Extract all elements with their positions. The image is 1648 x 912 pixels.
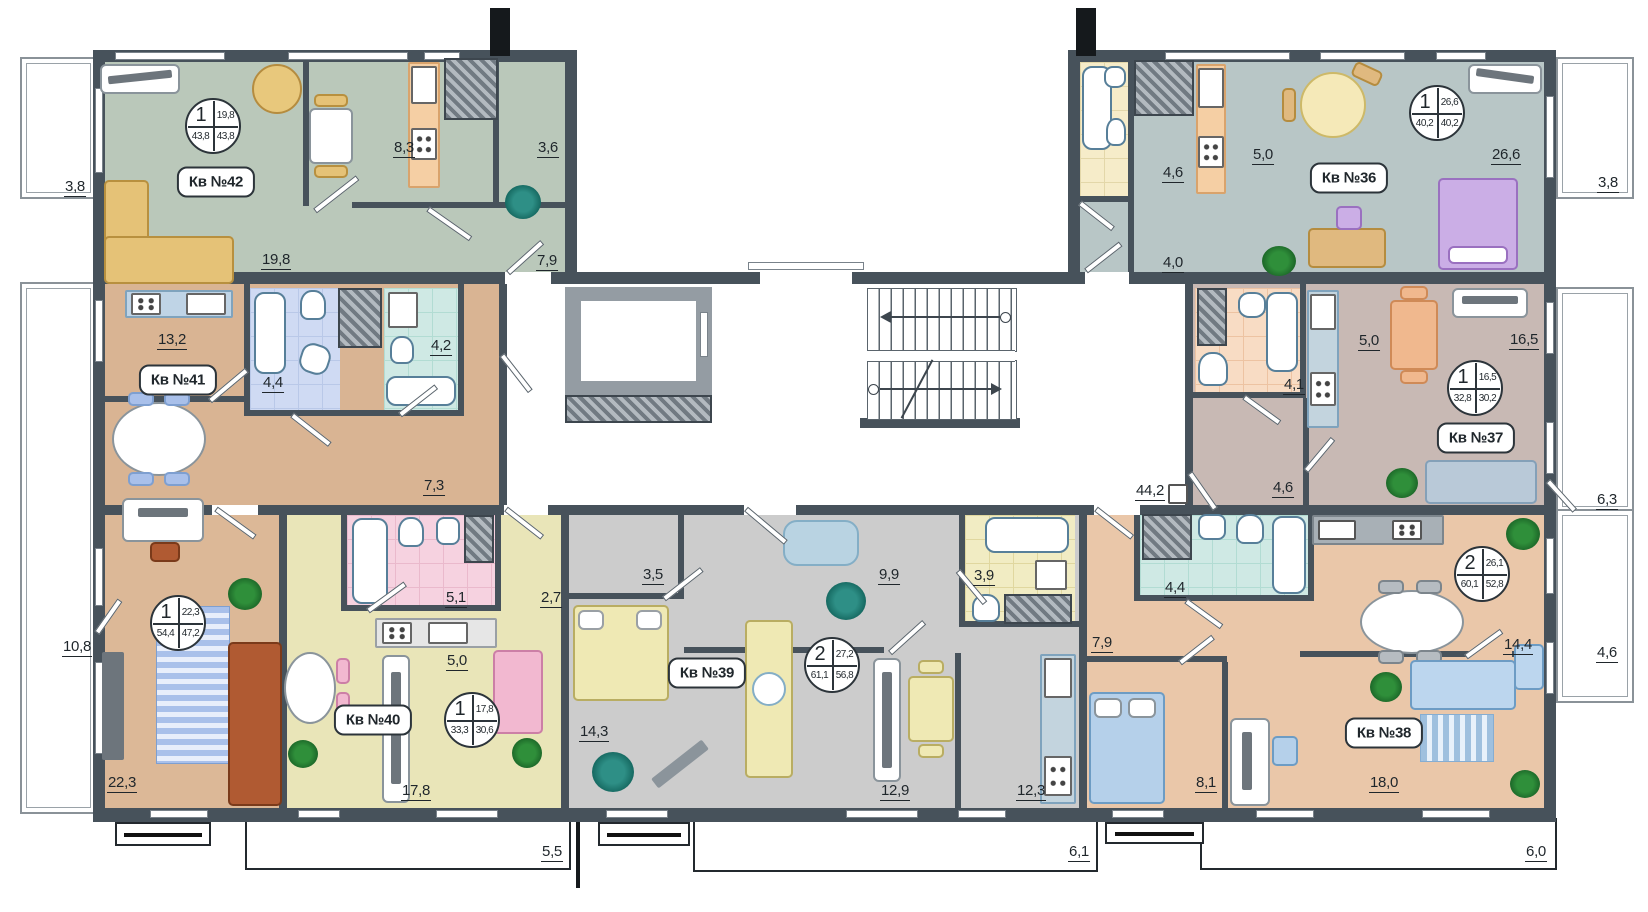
bathtub-icon <box>985 517 1069 553</box>
chair-icon <box>164 472 190 486</box>
plant-icon <box>505 185 541 219</box>
window <box>1546 302 1554 354</box>
corridor-area-label: 44,2 <box>1135 483 1165 501</box>
wall <box>244 284 250 414</box>
room-area-label: 3,6 <box>537 140 559 158</box>
plant-icon <box>228 578 262 610</box>
bottom-dim-label: 5,5 <box>541 844 563 862</box>
balcony-dim-label: 6,3 <box>1596 492 1618 510</box>
round-table-icon <box>284 652 336 724</box>
wall <box>1134 595 1314 601</box>
wall <box>495 515 501 611</box>
wall <box>93 505 1556 515</box>
bottom-dim-label: 6,0 <box>1525 844 1547 862</box>
balcony-left-top <box>20 57 97 199</box>
window <box>1320 52 1405 60</box>
plant-icon <box>1370 672 1402 702</box>
window <box>436 810 498 818</box>
fridge-icon <box>1044 658 1072 698</box>
vent-stack-icon <box>1076 8 1096 56</box>
window <box>1112 810 1164 818</box>
entrance-porch <box>598 822 690 846</box>
wall <box>244 410 462 416</box>
entrance-canopy <box>748 262 864 270</box>
window <box>700 312 708 357</box>
room-area-label: 16,5 <box>1509 332 1539 350</box>
window <box>846 810 918 818</box>
room-area-label: 7,9 <box>536 253 558 271</box>
dining-table-icon <box>1390 300 1438 370</box>
window <box>1546 642 1554 694</box>
toilet-icon <box>300 290 326 320</box>
window <box>1546 96 1554 178</box>
elevator-pit-hatch <box>565 395 712 423</box>
room-area-label: 5,0 <box>1358 333 1380 351</box>
wall <box>1079 515 1087 808</box>
window <box>115 52 225 60</box>
door-opening <box>1085 272 1129 284</box>
room-area-label: 14,3 <box>579 724 609 742</box>
balcony-dim-label: 4,6 <box>1596 645 1618 663</box>
tv-icon <box>102 652 124 760</box>
plant-icon <box>288 740 318 768</box>
monitor-icon <box>1242 732 1252 790</box>
room-area-label: 17,8 <box>401 783 431 801</box>
chair-icon <box>918 744 944 758</box>
bench-icon <box>783 520 859 566</box>
sofa-icon <box>1410 660 1516 710</box>
room-area-label: 3,5 <box>642 567 664 585</box>
sink-icon <box>186 293 226 315</box>
elevator-cabin <box>581 301 696 381</box>
window <box>95 548 103 606</box>
bathtub-icon <box>254 292 286 374</box>
toilet-icon <box>1198 352 1228 386</box>
chair-icon <box>1400 286 1428 300</box>
plant-icon <box>1506 518 1540 550</box>
chair-icon <box>1400 370 1428 384</box>
vent-shaft-icon <box>1197 288 1227 346</box>
room-area-label: 4,2 <box>430 338 452 356</box>
room-area-label: 5,1 <box>445 590 467 608</box>
armchair-icon <box>493 650 543 734</box>
pillow-icon <box>1094 698 1122 718</box>
balcony-dim-label: 3,8 <box>64 179 86 197</box>
fridge-icon <box>411 66 437 104</box>
bathtub-icon <box>1272 516 1306 594</box>
pillow-icon <box>1128 698 1156 718</box>
toilet-icon <box>390 336 414 364</box>
window <box>1436 52 1486 60</box>
room-area-label: 8,3 <box>393 140 415 158</box>
plant-icon <box>512 738 542 768</box>
room-area-label: 4,0 <box>1162 255 1184 273</box>
room-area-label: 19,8 <box>261 252 291 270</box>
window <box>288 52 408 60</box>
room-area-label: 2,7 <box>540 590 562 608</box>
window <box>298 810 340 818</box>
chair-icon <box>1378 580 1404 594</box>
rug-icon <box>1420 714 1494 762</box>
stove-icon <box>1392 520 1422 540</box>
plant-icon <box>592 752 634 792</box>
stair-direction-arrow <box>882 316 1000 318</box>
window <box>95 300 103 362</box>
sofa-icon <box>228 642 282 806</box>
monitor-icon <box>138 508 188 517</box>
wall <box>499 274 507 505</box>
stair-direction-arrow <box>880 388 1000 390</box>
room-area-label: 5,0 <box>446 653 468 671</box>
tv-icon <box>882 672 892 768</box>
bottom-dim-label: 6,1 <box>1068 844 1090 862</box>
room-area-label: 7,3 <box>423 478 445 496</box>
fridge-icon <box>1310 294 1336 330</box>
balcony-dim-label: 10,8 <box>62 639 92 657</box>
bathtub-icon <box>1266 292 1298 372</box>
balcony-right-low <box>1556 509 1634 703</box>
desk-icon <box>1308 228 1386 268</box>
apartment-badge-40: Кв №40 <box>334 705 412 736</box>
room-area-label: 4,6 <box>1272 480 1294 498</box>
staircase-landing <box>867 350 1015 362</box>
chair-icon <box>314 94 348 107</box>
pillow-icon <box>578 610 604 630</box>
apartment-badge-42: Кв №42 <box>177 167 255 198</box>
stove-icon <box>1044 756 1072 796</box>
wall <box>565 50 577 284</box>
apartment-info-circle-39: 227,2 61,156,8 <box>804 637 860 693</box>
balcony-dim-label: 3,8 <box>1597 175 1619 193</box>
oval-table-icon <box>112 402 206 476</box>
vent-shaft-icon <box>444 58 498 120</box>
bathtub-icon <box>352 518 388 604</box>
dining-table <box>309 108 353 164</box>
vent-shaft-icon <box>338 288 382 348</box>
chair-icon <box>150 542 180 562</box>
washing-machine-icon <box>1035 560 1067 590</box>
wall <box>458 284 464 416</box>
vent-shaft-icon <box>1134 60 1194 116</box>
window <box>958 810 1006 818</box>
stove-icon <box>131 293 161 315</box>
chair-icon <box>1378 650 1404 664</box>
chair-icon <box>918 660 944 674</box>
chair-icon <box>1416 580 1442 594</box>
apartment-info-circle-38: 226,1 60,152,8 <box>1454 546 1510 602</box>
apartment-badge-38: Кв №38 <box>1345 718 1423 749</box>
apartment-badge-39: Кв №39 <box>668 658 746 689</box>
apartment-badge-36: Кв №36 <box>1310 163 1388 194</box>
balcony-left-bottom <box>20 282 97 814</box>
window <box>1546 538 1554 594</box>
wall <box>1134 515 1140 599</box>
apartment-info-circle-36: 126,6 40,240,2 <box>1409 85 1465 141</box>
toilet-icon <box>398 517 424 547</box>
room-area-label: 14,4 <box>1503 637 1533 655</box>
room-area-label: 4,1 <box>1283 377 1305 395</box>
plant-icon <box>1262 246 1296 276</box>
sink-icon <box>1198 514 1226 540</box>
pillow-icon <box>636 610 662 630</box>
toilet-icon <box>1236 514 1264 544</box>
stair-arrow-origin <box>868 384 879 395</box>
round-table-icon <box>1300 72 1366 138</box>
sink-icon <box>1238 292 1266 318</box>
ground-mark <box>576 822 580 888</box>
wall <box>341 515 347 611</box>
room-area-label: 7,9 <box>1091 635 1113 653</box>
stove-icon <box>1198 136 1224 168</box>
terrace-bottom-right <box>1200 818 1557 870</box>
terrace-bottom-mid <box>693 820 1098 872</box>
apartment-info-circle-42: 119,8 43,843,8 <box>185 98 241 154</box>
armchair-icon <box>252 64 302 114</box>
chair-icon <box>314 165 348 178</box>
apartment-info-circle-40: 117,8 33,330,6 <box>444 692 500 748</box>
tv-icon <box>1462 296 1518 304</box>
apartment-badge-41: Кв №41 <box>139 365 217 396</box>
pillow-icon <box>1448 246 1508 264</box>
washing-machine-icon <box>388 292 418 328</box>
sink-icon <box>1104 66 1126 88</box>
stove-icon <box>1310 372 1336 406</box>
oval-table-icon <box>1360 590 1464 654</box>
window <box>1165 52 1290 60</box>
stair-arrow-origin <box>1000 312 1011 323</box>
plant-icon <box>1386 468 1418 498</box>
room-area-label: 8,1 <box>1195 775 1217 793</box>
entrance-porch <box>115 822 211 846</box>
chair-icon <box>1336 206 1362 230</box>
window <box>1546 422 1554 474</box>
wall <box>1068 50 1080 284</box>
stove-icon <box>382 622 412 644</box>
window <box>606 810 668 818</box>
floor-plan: Кв №42 Кв №41 Кв №40 Кв №39 Кв №38 Кв №3… <box>0 0 1648 912</box>
room-area-label: 5,0 <box>1252 147 1274 165</box>
room-area-label: 9,9 <box>878 567 900 585</box>
wall <box>955 653 961 808</box>
entrance-porch <box>1105 822 1204 844</box>
room-area-label: 4,4 <box>262 375 284 393</box>
sofa-icon <box>1425 460 1537 504</box>
vent-shaft-icon <box>1142 514 1192 560</box>
room-area-label: 18,0 <box>1369 775 1399 793</box>
plant-icon <box>826 582 866 620</box>
terrace-bottom-left <box>245 820 571 870</box>
toilet-icon <box>1106 118 1126 146</box>
room-area-label: 4,4 <box>1164 580 1186 598</box>
wall <box>1222 662 1228 808</box>
vent-stack-icon <box>490 8 510 56</box>
wall <box>1087 656 1227 662</box>
plant-icon <box>1510 770 1540 798</box>
chair-icon <box>1272 736 1298 766</box>
desk-icon <box>122 498 204 542</box>
sofa-icon <box>104 236 234 284</box>
room-area-label: 26,6 <box>1491 147 1521 165</box>
apartment-badge-37: Кв №37 <box>1437 423 1515 454</box>
chair-icon <box>336 658 350 684</box>
wall <box>561 515 569 808</box>
entrance-opening <box>760 272 852 284</box>
sink-icon <box>436 517 460 545</box>
apartment-info-circle-41: 122,3 54,447,2 <box>150 595 206 651</box>
fridge-icon <box>1198 68 1224 108</box>
dining-table-icon <box>908 676 954 742</box>
hall-cabinet <box>1168 484 1188 504</box>
apartment-info-circle-37: 116,5 32,830,2 <box>1447 360 1503 416</box>
room-area-label: 12,3 <box>1016 783 1046 801</box>
room-area-label: 4,6 <box>1162 165 1184 183</box>
door-opening <box>505 272 551 284</box>
sink-icon <box>1318 520 1356 540</box>
window <box>150 810 208 818</box>
chair-icon <box>128 472 154 486</box>
room-area-label: 3,9 <box>973 568 995 586</box>
balcony-right-mid <box>1556 287 1634 513</box>
vent-shaft-icon <box>464 515 494 563</box>
window <box>95 88 103 173</box>
window <box>1256 810 1314 818</box>
side-table-icon <box>752 672 786 706</box>
window <box>1422 810 1490 818</box>
room-area-label: 22,3 <box>107 775 137 793</box>
sink-icon <box>428 622 468 644</box>
vent-shaft-icon <box>1004 594 1072 624</box>
room-area-label: 13,2 <box>157 332 187 350</box>
balcony-right-top <box>1556 57 1634 199</box>
chair-icon <box>1282 88 1296 122</box>
room-area-label: 12,9 <box>880 783 910 801</box>
